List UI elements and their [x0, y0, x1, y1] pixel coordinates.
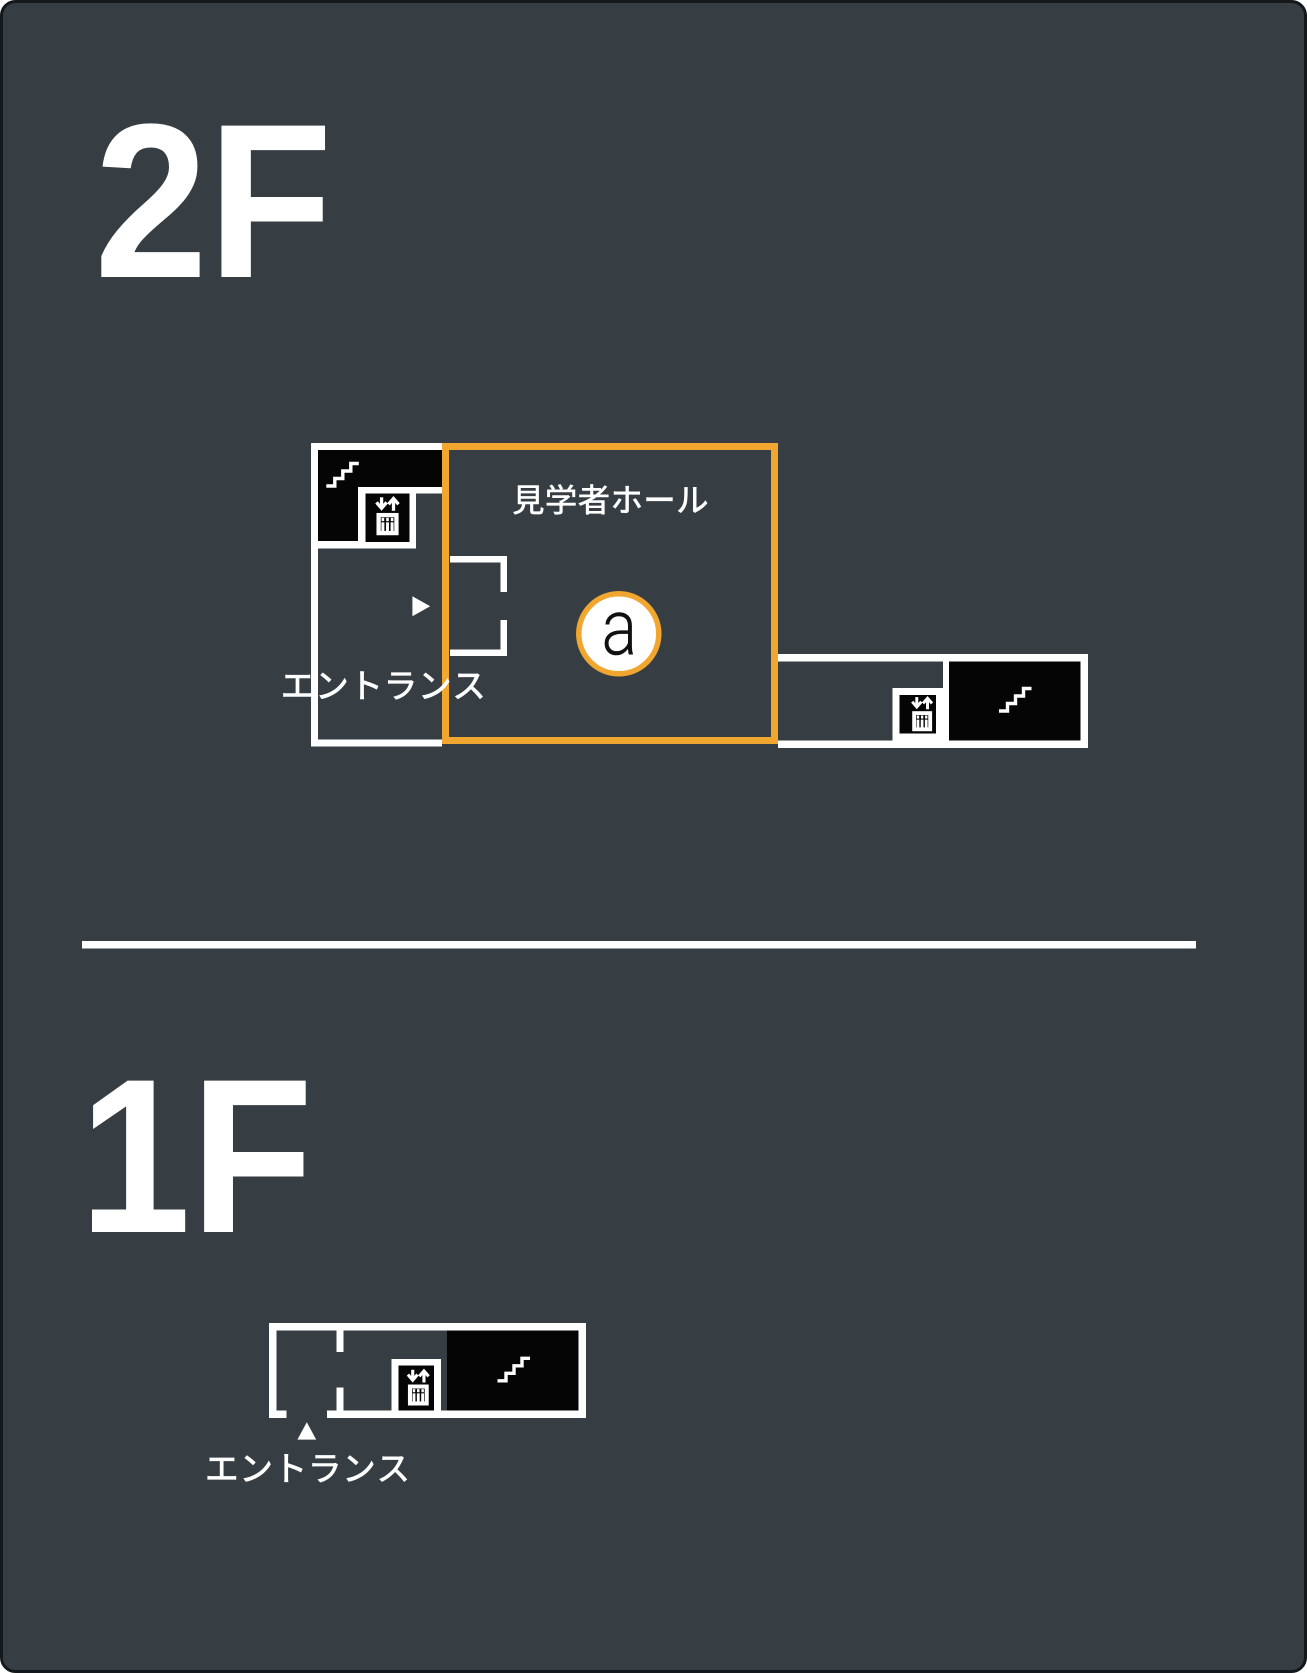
svg-text:2F: 2F: [94, 78, 332, 324]
svg-text:1F: 1F: [79, 1033, 313, 1279]
